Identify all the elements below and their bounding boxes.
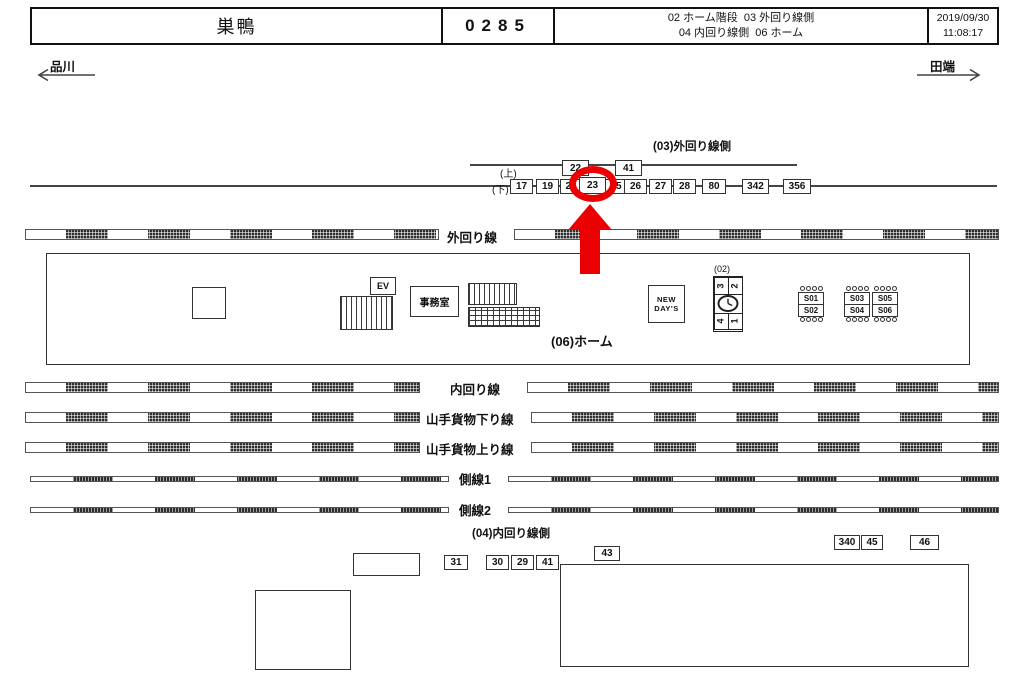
clock-icon <box>717 295 739 312</box>
escalator-band <box>468 307 540 327</box>
camera-box-356[interactable]: 356 <box>783 179 811 194</box>
row-up-label: (上) <box>500 165 517 180</box>
stair-block-label: (02) <box>714 264 730 274</box>
camera-box-19[interactable]: 19 <box>536 179 559 194</box>
track-segment-siding1-right <box>508 476 999 482</box>
bench-label: S05 <box>873 293 897 305</box>
track-segment-freight-up-right <box>531 442 999 453</box>
stair-cell-4: 4 <box>714 313 729 330</box>
bench-label: S02 <box>799 305 823 316</box>
camera-box-342[interactable]: 342 <box>742 179 769 194</box>
camera-box-80[interactable]: 80 <box>702 179 726 194</box>
track-segment-freight-down-left <box>25 412 420 423</box>
track-label-siding-1: 側線1 <box>459 469 491 488</box>
lower-structure-box-right <box>560 564 969 667</box>
stair-cell-1: 1 <box>728 313 743 330</box>
camera-box-30[interactable]: 30 <box>486 555 509 570</box>
camera-legend-line2: 04 内回り線側 06 ホーム <box>679 26 803 41</box>
station-code: 0285 <box>441 9 553 43</box>
header-bar: 巣鴨 0285 02 ホーム階段 03 外回り線側 04 内回り線側 06 ホー… <box>30 7 999 45</box>
camera-box-340[interactable]: 340 <box>834 535 860 550</box>
platform-structure-box <box>192 287 226 319</box>
track-segment-inner-right <box>527 382 999 393</box>
staircase-center <box>468 283 517 305</box>
bench-label: S06 <box>873 305 897 316</box>
camera-box-41-down[interactable]: 41 <box>536 555 559 570</box>
bench-group-2: S03 S04 <box>844 286 870 323</box>
camera-box-26[interactable]: 26 <box>624 179 647 194</box>
camera-box-43[interactable]: 43 <box>594 546 620 561</box>
bench-seat-dots <box>872 317 898 323</box>
camera-box-28[interactable]: 28 <box>673 179 696 194</box>
lower-structure-box-small <box>353 553 420 576</box>
track-segment-siding2-left <box>30 507 449 513</box>
inner-side-section-label: (04)内回り線側 <box>472 525 550 541</box>
camera-box-31[interactable]: 31 <box>444 555 468 570</box>
camera-box-46[interactable]: 46 <box>910 535 939 550</box>
stair-cell-2: 2 <box>728 277 743 295</box>
camera-box-41-up[interactable]: 41 <box>615 160 642 176</box>
station-camera-monitor: 巣鴨 0285 02 ホーム階段 03 外回り線側 04 内回り線側 06 ホー… <box>0 0 1024 675</box>
track-label-freight-down: 山手貨物下り線 <box>426 409 514 428</box>
bench-label: S03 <box>845 293 869 305</box>
camera-box-17[interactable]: 17 <box>510 179 533 194</box>
right-arrow-icon <box>915 68 985 82</box>
track-segment-freight-up-left <box>25 442 420 453</box>
camera-legend-line1: 02 ホーム階段 03 外回り線側 <box>668 11 814 26</box>
track-segment-outer-left <box>25 229 439 240</box>
camera-legend: 02 ホーム階段 03 外回り線側 04 内回り線側 06 ホーム <box>553 9 927 43</box>
camera-box-29[interactable]: 29 <box>511 555 534 570</box>
camera-box-45[interactable]: 45 <box>861 535 883 550</box>
track-segment-inner-left <box>25 382 420 393</box>
date-text: 2019/09/30 <box>937 11 990 26</box>
station-name: 巣鴨 <box>32 9 441 43</box>
bench-seat-dots <box>798 317 824 323</box>
kiosk-label-line1: NEW <box>657 295 676 304</box>
highlight-arrow-up-icon <box>568 204 612 274</box>
bench-label: S01 <box>799 293 823 305</box>
stair-block: 3 2 4 1 <box>713 276 743 332</box>
track-label-siding-2: 側線2 <box>459 500 491 519</box>
bench-seat-dots <box>844 317 870 323</box>
track-label-outer: 外回り線 <box>447 227 497 246</box>
platform-section-label: (06)ホーム <box>551 331 613 350</box>
kiosk-label-line2: DAY'S <box>654 304 678 313</box>
bench-group-3: S05 S06 <box>872 286 898 323</box>
bench-group-1: S01 S02 <box>798 286 824 323</box>
track-segment-siding1-left <box>30 476 449 482</box>
track-segment-siding2-right <box>508 507 999 513</box>
time-text: 11:08:17 <box>943 26 983 41</box>
outer-side-section-label: (03)外回り線側 <box>653 138 731 154</box>
track-label-inner: 内回り線 <box>450 379 500 398</box>
lower-structure-box-left <box>255 590 351 670</box>
highlight-circle <box>569 166 617 202</box>
stair-cell-3: 3 <box>714 277 729 295</box>
elevator-box: EV <box>370 277 396 295</box>
staircase-west <box>340 296 393 330</box>
clock-cell <box>714 294 743 314</box>
office-box: 事務室 <box>410 286 459 317</box>
row-down-label: (下) <box>492 181 509 196</box>
bench-label: S04 <box>845 305 869 316</box>
camera-box-27[interactable]: 27 <box>649 179 672 194</box>
datetime: 2019/09/30 11:08:17 <box>927 9 997 43</box>
track-label-freight-up: 山手貨物上り線 <box>426 439 514 458</box>
track-segment-freight-down-right <box>531 412 999 423</box>
kiosk-box: NEW DAY'S <box>648 285 685 323</box>
left-arrow-icon <box>33 68 97 82</box>
